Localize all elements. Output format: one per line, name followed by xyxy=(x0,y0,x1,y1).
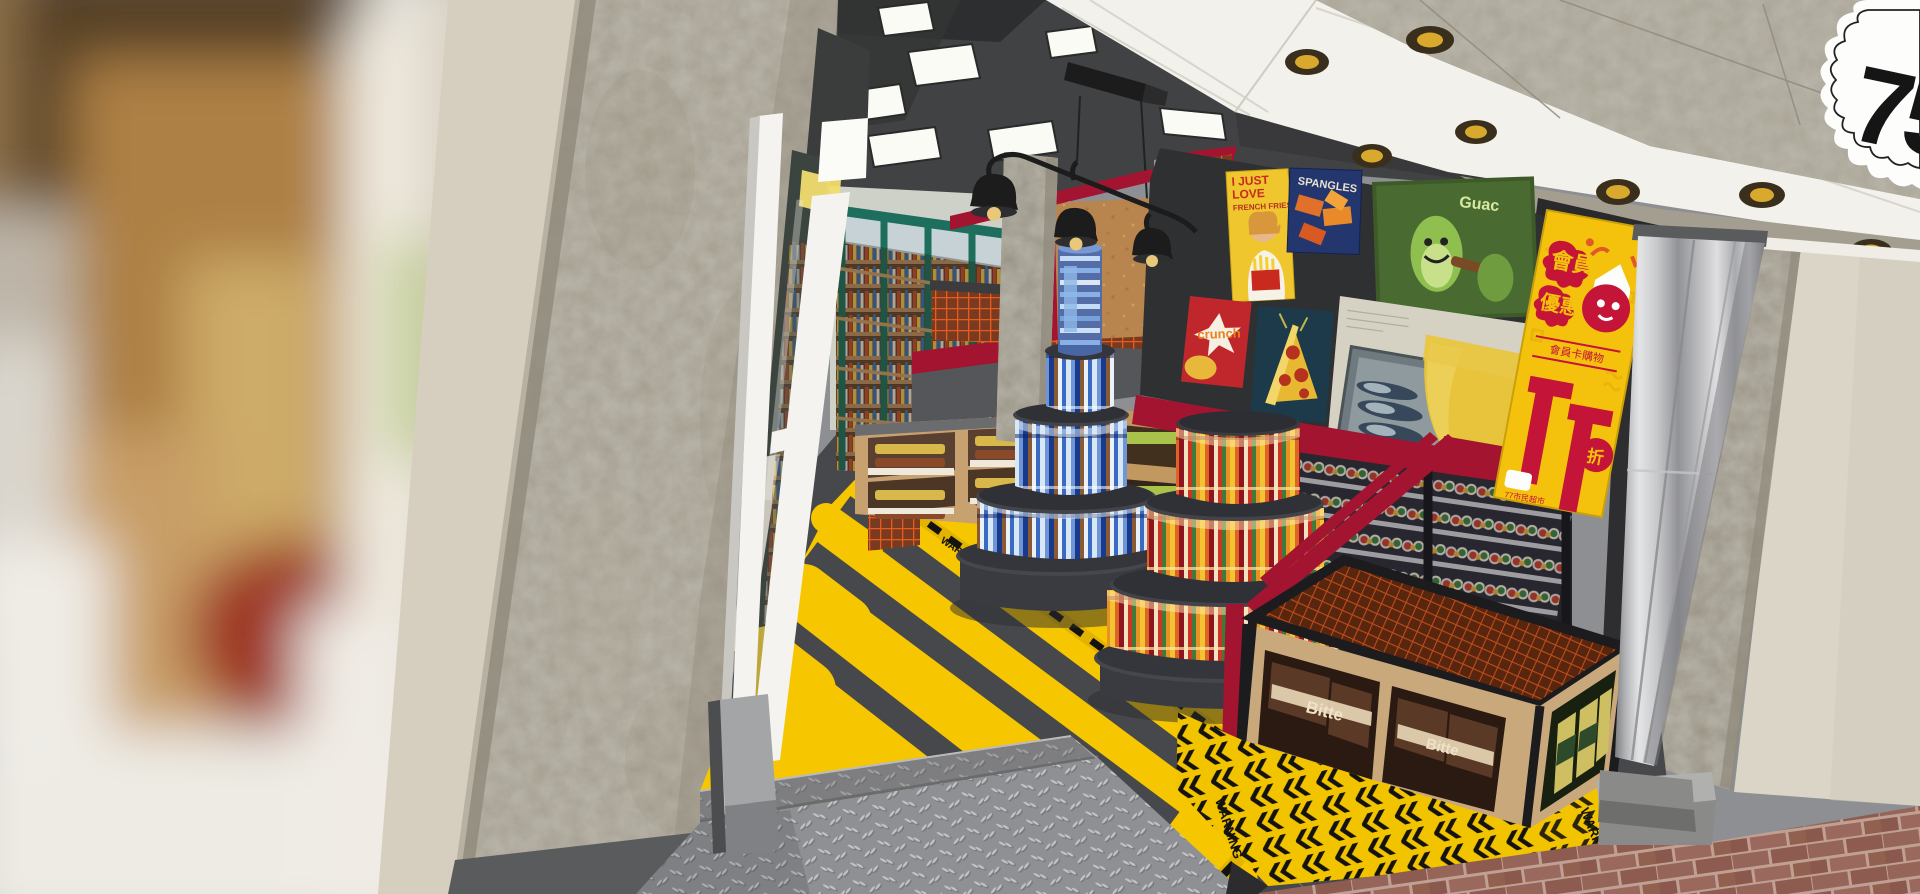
svg-text:crunch: crunch xyxy=(1197,326,1241,343)
svg-text:折: 折 xyxy=(1585,446,1605,469)
svg-text:LOVE: LOVE xyxy=(1232,186,1265,202)
